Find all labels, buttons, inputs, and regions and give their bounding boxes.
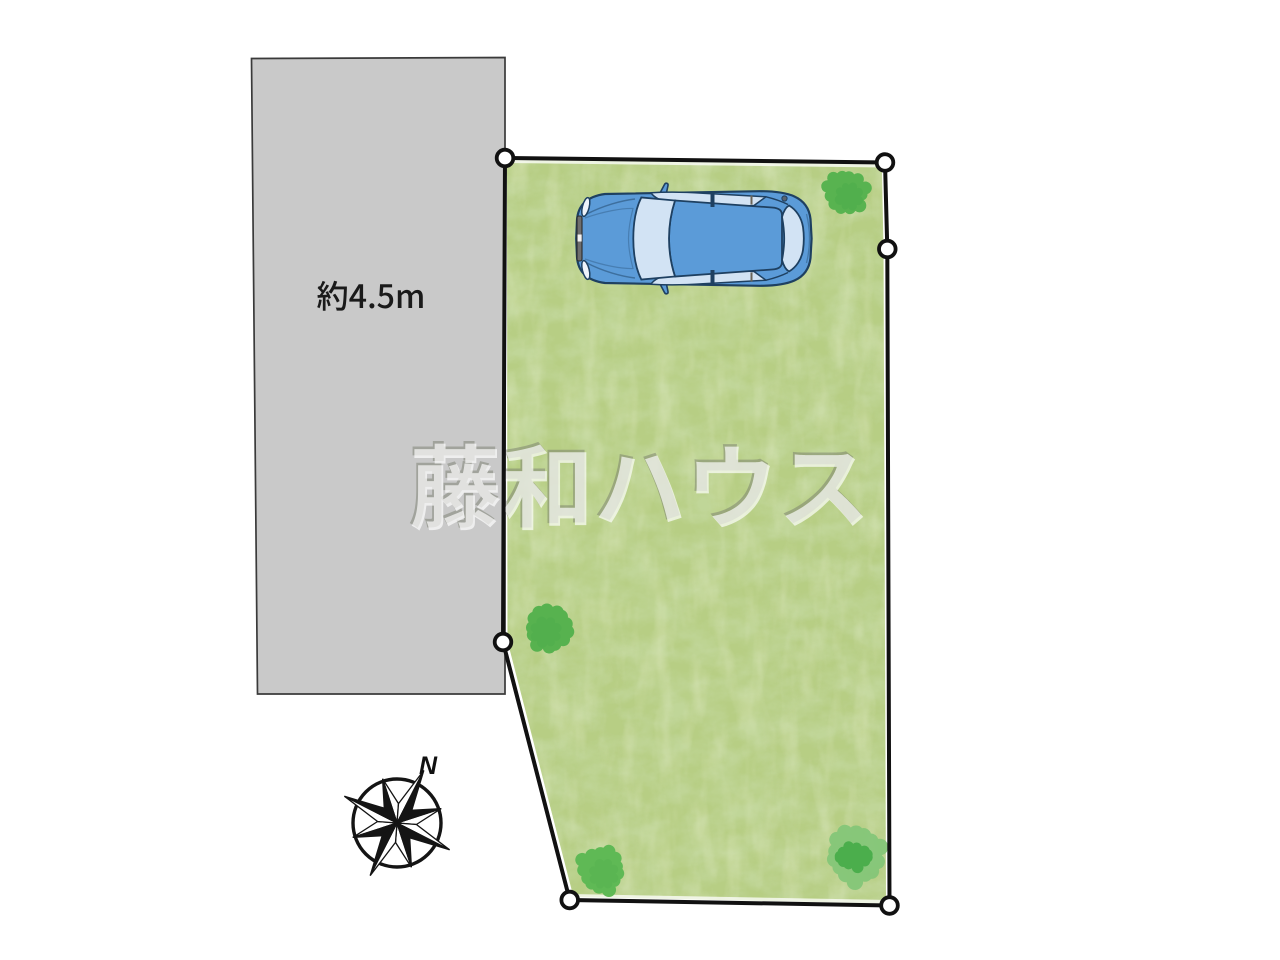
svg-text:N: N (419, 752, 438, 780)
